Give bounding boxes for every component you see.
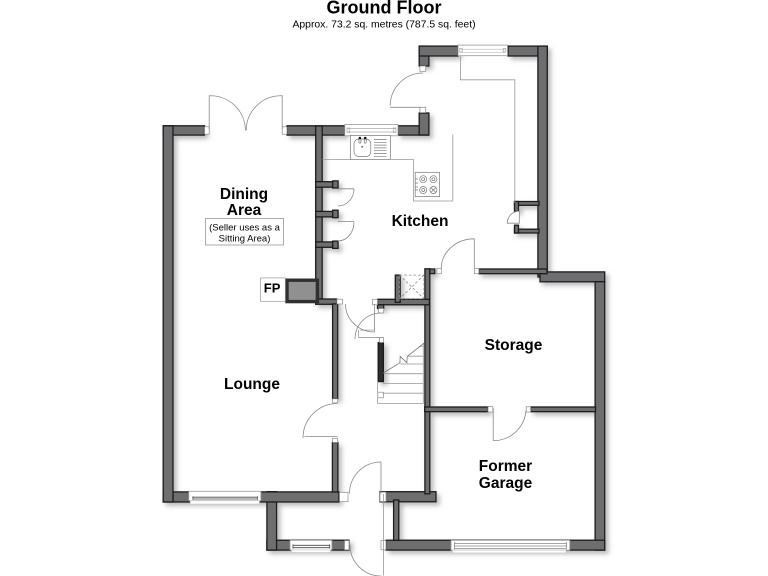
svg-text:Lounge: Lounge (224, 376, 280, 393)
svg-text:Sitting Area): Sitting Area) (219, 234, 271, 245)
svg-text:Kitchen: Kitchen (392, 213, 449, 230)
svg-text:Area: Area (227, 202, 262, 219)
svg-text:Garage: Garage (479, 475, 533, 492)
svg-text:FP: FP (264, 281, 281, 296)
svg-text:(Seller uses as a: (Seller uses as a (209, 223, 280, 234)
svg-text:Dining: Dining (220, 186, 268, 203)
svg-text:Approx. 73.2 sq. metres (787.5: Approx. 73.2 sq. metres (787.5 sq. feet) (292, 20, 475, 31)
svg-text:Former: Former (479, 458, 532, 475)
svg-text:Storage: Storage (485, 337, 543, 354)
svg-text:Ground Floor: Ground Floor (327, 0, 442, 18)
